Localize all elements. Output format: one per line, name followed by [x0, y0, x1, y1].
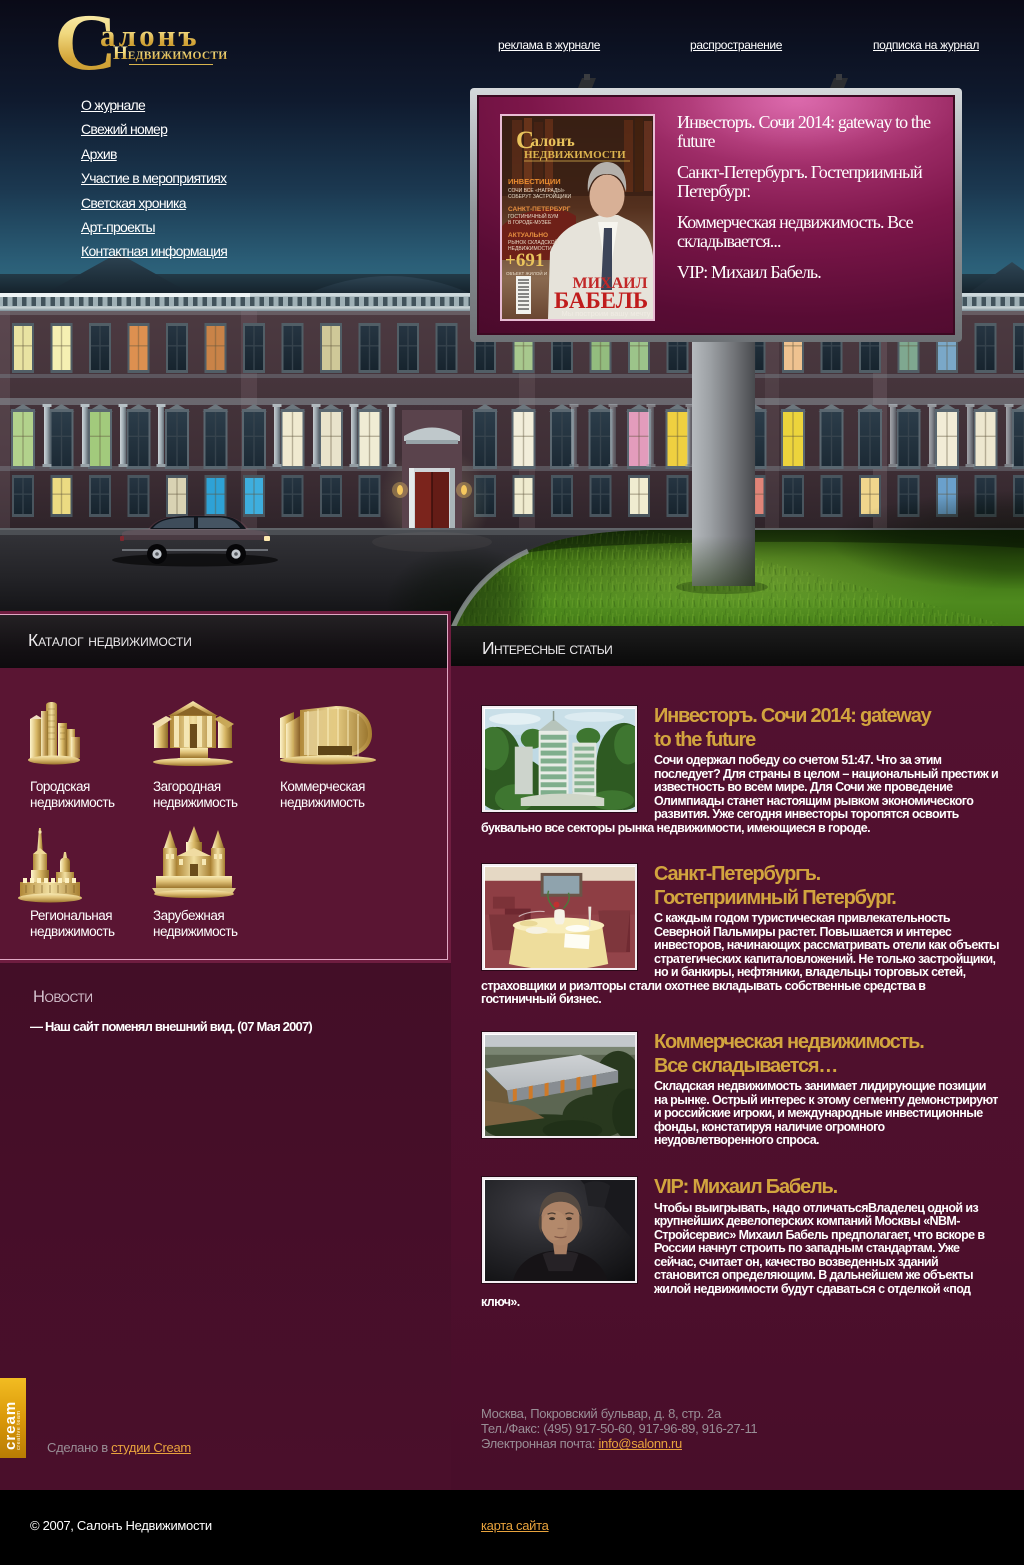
svg-text:В ГОРОДЕ-МУЗЕЕ: В ГОРОДЕ-МУЗЕЕ [508, 220, 552, 226]
svg-text:Мы построим вашу мечту: Мы построим вашу мечту [561, 309, 650, 318]
svg-text:ГОСТИНИЧНЫЙ БУМ: ГОСТИНИЧНЫЙ БУМ [508, 212, 558, 220]
svg-text:СОБЕРУТ ЗАСТРОЙЩИКИ: СОБЕРУТ ЗАСТРОЙЩИКИ [508, 192, 571, 200]
svg-text:НЕДВИЖИМОСТИ: НЕДВИЖИМОСТИ [524, 149, 626, 161]
svg-text:РЫНОК СКЛАДСКОЙ: РЫНОК СКЛАДСКОЙ [508, 238, 559, 246]
svg-text:АКТУАЛЬНО: АКТУАЛЬНО [508, 232, 548, 239]
svg-text:ИНВЕСТИЦИИ: ИНВЕСТИЦИИ [508, 177, 561, 186]
svg-text:+691: +691 [505, 250, 544, 271]
svg-text:алонъ: алонъ [531, 133, 575, 150]
svg-text:САНКТ-ПЕТЕРБУРГ: САНКТ-ПЕТЕРБУРГ [508, 206, 571, 213]
svg-text:ОБЪЕКТ ЖИЛОЙ И: ОБЪЕКТ ЖИЛОЙ И [506, 269, 547, 276]
